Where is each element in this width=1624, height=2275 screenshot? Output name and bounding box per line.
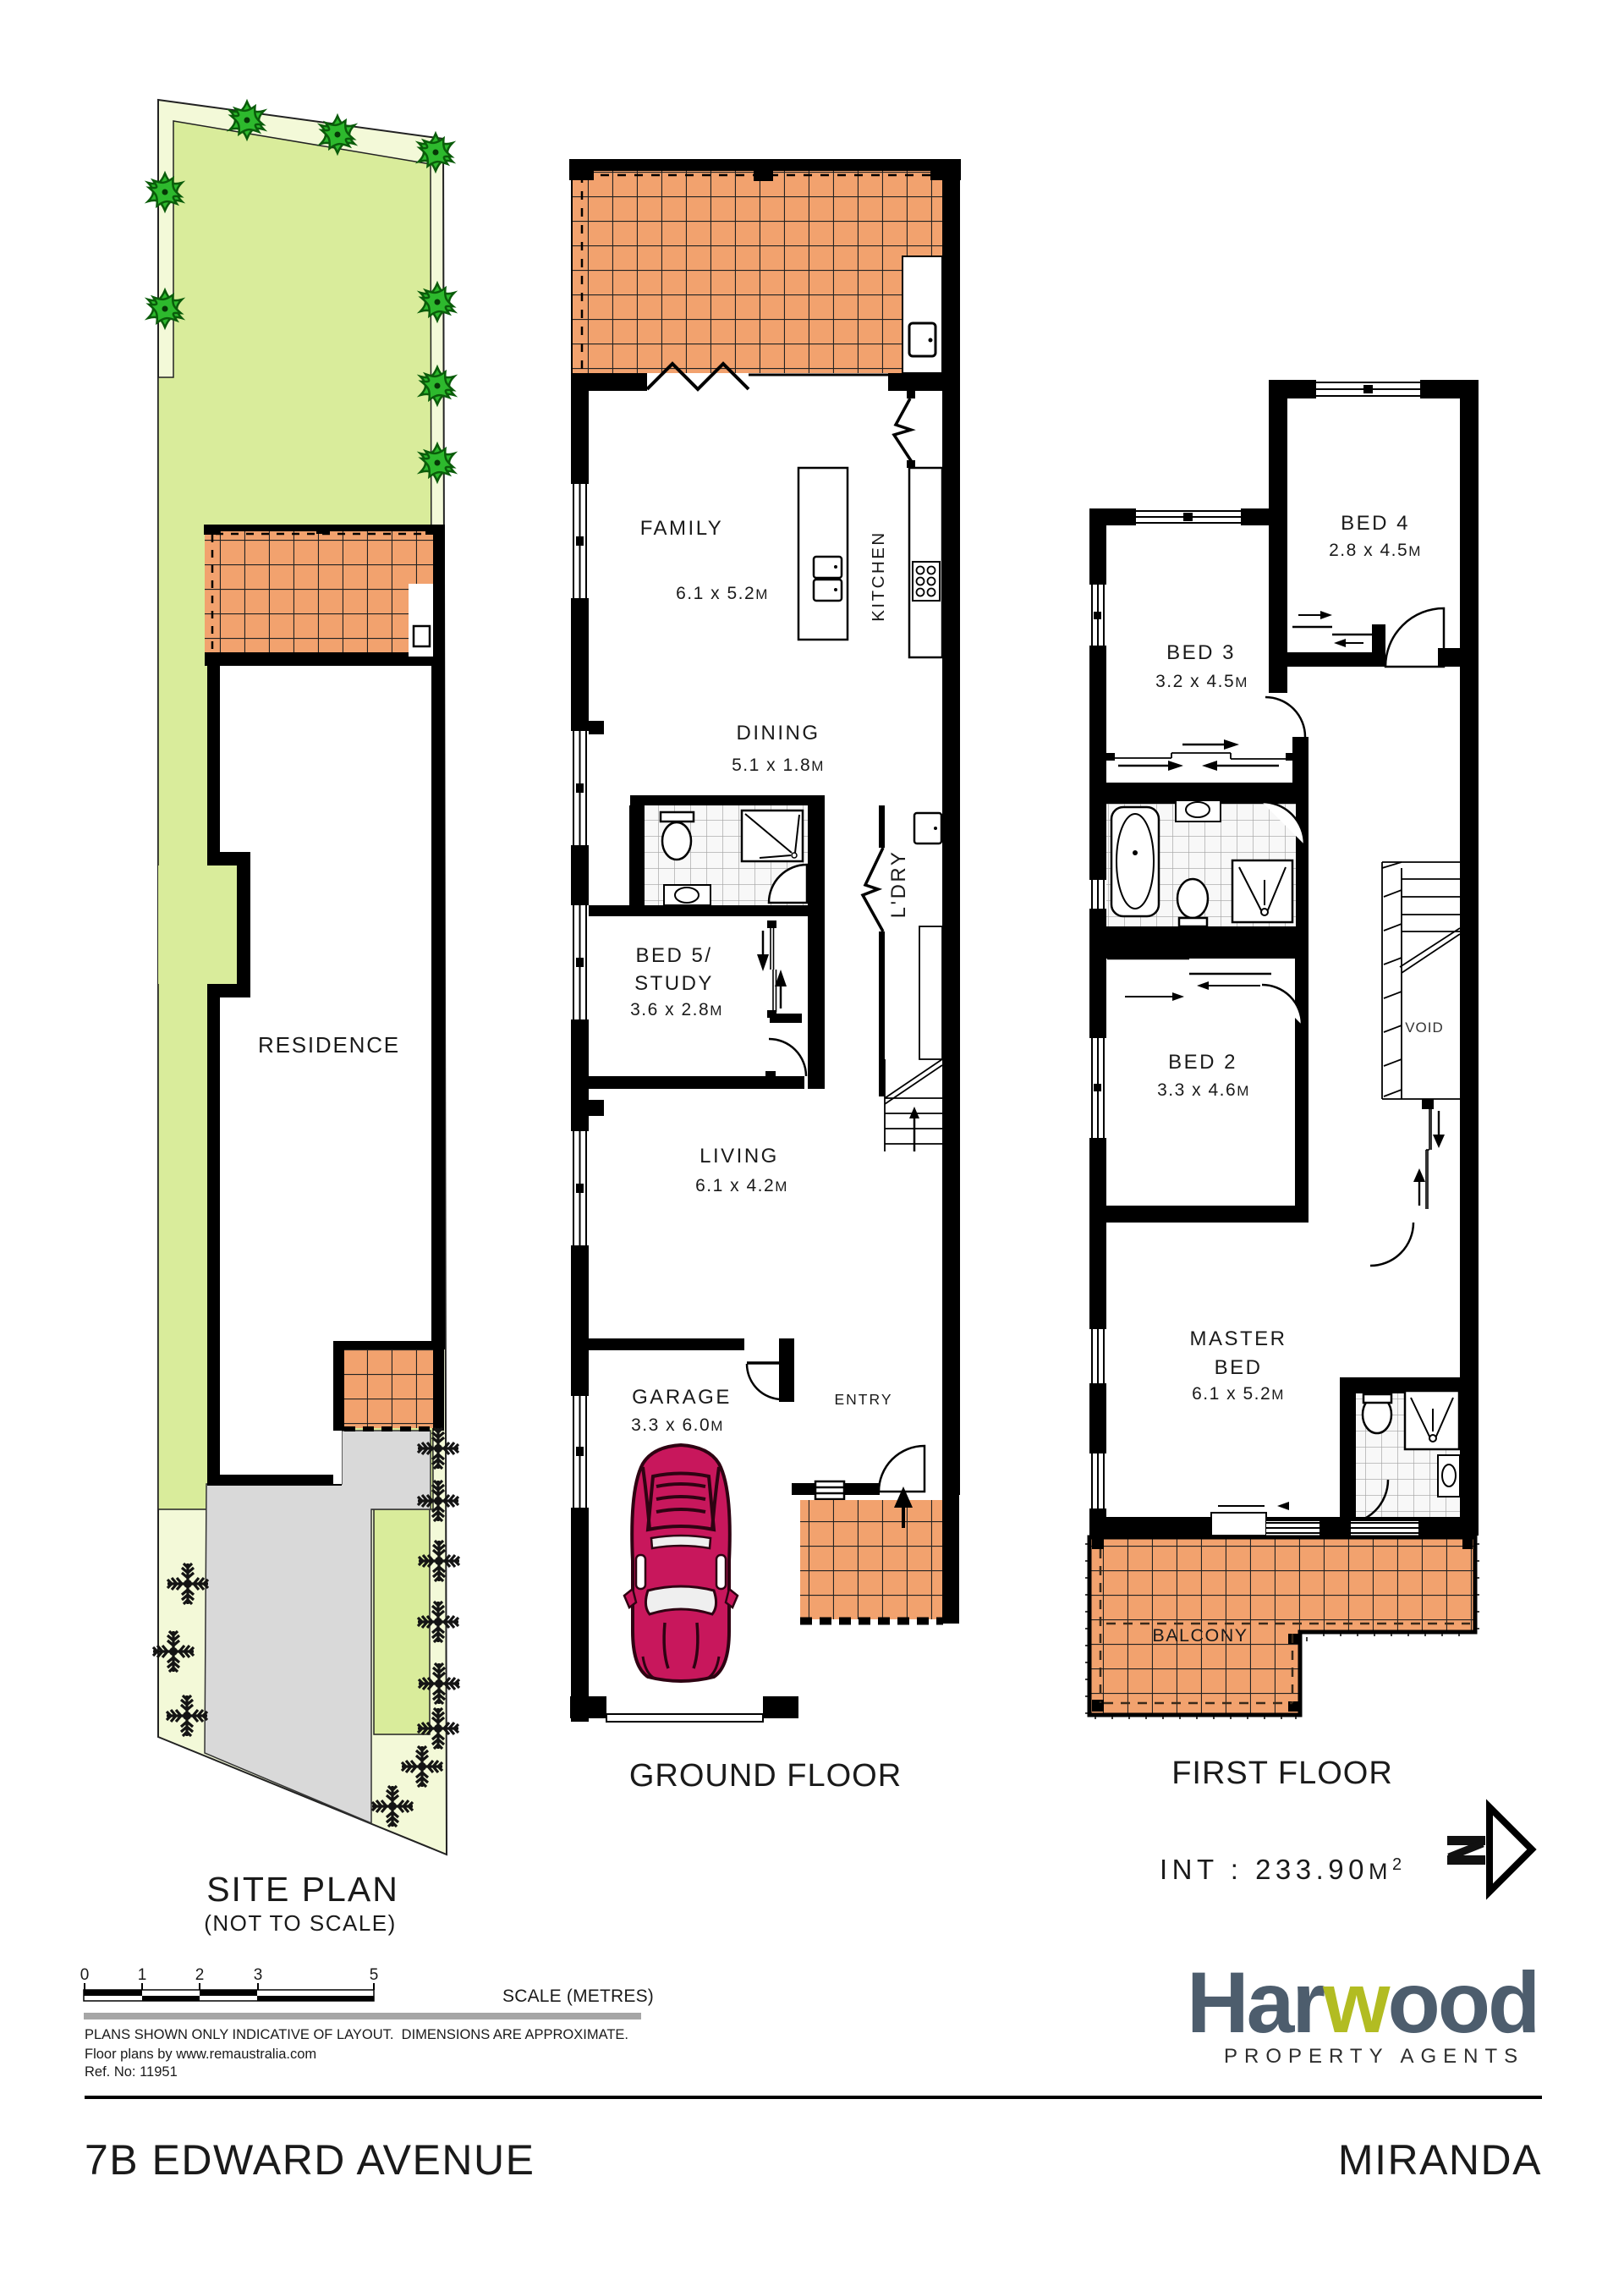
- svg-text:1: 1: [138, 1966, 147, 1984]
- svg-text:(NOT TO SCALE): (NOT TO SCALE): [204, 1910, 397, 1936]
- svg-text:6.1 x 5.2M: 6.1 x 5.2M: [676, 584, 769, 603]
- svg-text:3.6 x 2.8M: 3.6 x 2.8M: [630, 1000, 723, 1019]
- svg-text:KITCHEN: KITCHEN: [869, 530, 888, 621]
- svg-text:3.3 x 6.0M: 3.3 x 6.0M: [631, 1415, 724, 1435]
- svg-text:L'DRY: L'DRY: [887, 850, 910, 919]
- svg-text:3.2 x 4.5M: 3.2 x 4.5M: [1155, 672, 1248, 691]
- svg-text:BED 3: BED 3: [1166, 641, 1236, 664]
- svg-text:3.3 x 4.6M: 3.3 x 4.6M: [1157, 1080, 1250, 1100]
- svg-text:MASTER: MASTER: [1189, 1327, 1287, 1350]
- svg-text:BED 2: BED 2: [1168, 1051, 1237, 1074]
- svg-text:VOID: VOID: [1405, 1019, 1444, 1036]
- svg-text:DINING: DINING: [737, 722, 820, 745]
- svg-text:MIRANDA: MIRANDA: [1338, 2136, 1542, 2184]
- svg-text:5: 5: [370, 1966, 379, 1984]
- svg-text:BED 4: BED 4: [1341, 512, 1410, 535]
- svg-text:2.8 x 4.5M: 2.8 x 4.5M: [1329, 541, 1422, 560]
- svg-text:RESIDENCE: RESIDENCE: [258, 1032, 400, 1058]
- svg-text:FAMILY: FAMILY: [640, 517, 724, 540]
- svg-text:GROUND FLOOR: GROUND FLOOR: [629, 1758, 902, 1794]
- svg-text:STUDY: STUDY: [634, 972, 714, 995]
- svg-text:7B EDWARD AVENUE: 7B EDWARD AVENUE: [85, 2136, 535, 2184]
- svg-text:2: 2: [195, 1966, 205, 1984]
- svg-text:SCALE (METRES): SCALE (METRES): [502, 1987, 654, 2006]
- svg-text:ENTRY: ENTRY: [835, 1391, 893, 1408]
- svg-text:BED 5/: BED 5/: [635, 944, 712, 967]
- svg-text:LIVING: LIVING: [700, 1145, 779, 1168]
- svg-text:SITE PLAN: SITE PLAN: [206, 1870, 399, 1909]
- svg-text:BALCONY: BALCONY: [1152, 1625, 1248, 1646]
- svg-text:Floor plans by www.remaustrali: Floor plans by www.remaustralia.com: [85, 2047, 316, 2062]
- svg-text:3: 3: [254, 1966, 263, 1984]
- svg-text:GARAGE: GARAGE: [632, 1386, 732, 1409]
- svg-text:INT : 233.90M2: INT : 233.90M2: [1160, 1854, 1407, 1885]
- svg-text:Ref. No: 11951: Ref. No: 11951: [85, 2064, 178, 2080]
- svg-text:PLANS SHOWN ONLY INDICATIVE OF: PLANS SHOWN ONLY INDICATIVE OF LAYOUT. D…: [85, 2027, 628, 2042]
- svg-text:PROPERTY AGENTS: PROPERTY AGENTS: [1224, 2045, 1524, 2068]
- svg-text:6.1 x 5.2M: 6.1 x 5.2M: [1192, 1384, 1285, 1404]
- svg-text:BED: BED: [1215, 1356, 1263, 1379]
- svg-text:0: 0: [80, 1966, 90, 1984]
- svg-text:Harwood: Harwood: [1187, 1954, 1538, 2051]
- svg-text:6.1 x 4.2M: 6.1 x 4.2M: [695, 1176, 788, 1195]
- svg-text:5.1 x 1.8M: 5.1 x 1.8M: [732, 756, 825, 775]
- svg-text:FIRST FLOOR: FIRST FLOOR: [1171, 1756, 1393, 1791]
